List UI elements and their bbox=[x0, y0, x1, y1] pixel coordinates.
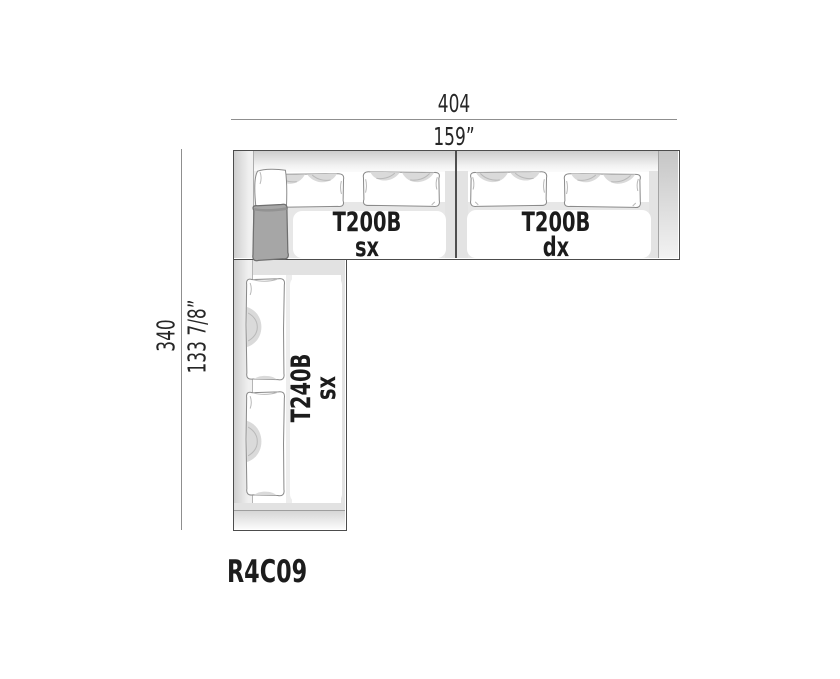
module-divider-line bbox=[455, 151, 457, 258]
product-code-label: R4C09 bbox=[227, 558, 307, 586]
module-label-t200b-sx: T200B sx bbox=[309, 210, 424, 260]
module-label-t200b-dx: T200B dx bbox=[498, 210, 613, 260]
right-armrest bbox=[658, 151, 678, 258]
bottom-armrest bbox=[234, 510, 345, 529]
width-dimension-cm: 404 bbox=[400, 90, 509, 117]
side-bottom-margin bbox=[234, 503, 345, 510]
corner-accent-pillow bbox=[247, 202, 291, 262]
module-variant: sx bbox=[309, 235, 424, 260]
back-pillow-4 bbox=[561, 172, 645, 209]
sofa-plan-diagram: 404 159” 340 133 7/8” T200B sx bbox=[0, 0, 840, 679]
side-back-pillow-2 bbox=[244, 388, 287, 499]
module-label-t240b-sx: T240B sx bbox=[289, 330, 339, 445]
back-pillow-3 bbox=[466, 170, 550, 208]
depth-dimension-inches: 133 7/8” bbox=[184, 282, 211, 391]
width-dimension-line bbox=[231, 119, 677, 120]
side-back-pillow-1 bbox=[244, 275, 287, 383]
back-pillow-2 bbox=[360, 170, 444, 208]
module-variant: sx bbox=[314, 330, 339, 445]
module-variant: dx bbox=[498, 235, 613, 260]
depth-dimension-cm: 340 bbox=[153, 281, 180, 390]
width-dimension-inches: 159” bbox=[400, 123, 509, 150]
